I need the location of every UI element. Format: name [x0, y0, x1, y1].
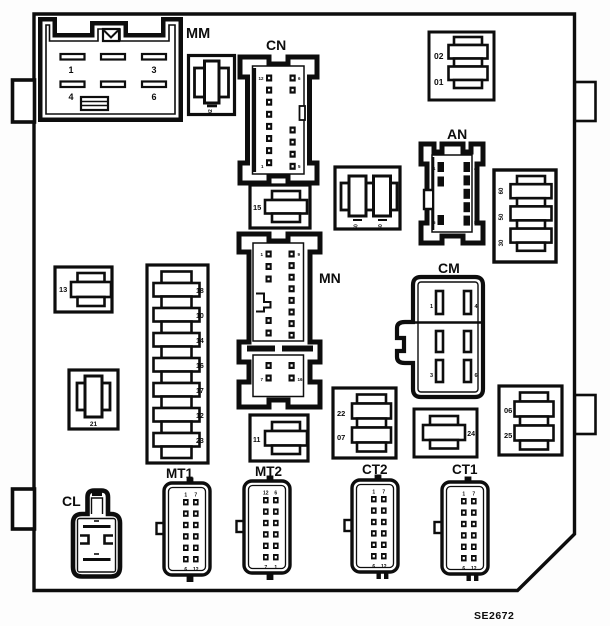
svg-text:SE2672: SE2672	[474, 610, 514, 622]
svg-text:7: 7	[264, 565, 267, 571]
svg-text:13: 13	[59, 285, 67, 294]
svg-text:CN: CN	[266, 37, 286, 53]
svg-text:AN: AN	[447, 126, 467, 142]
svg-text:16: 16	[196, 363, 204, 370]
svg-text:3: 3	[430, 373, 433, 379]
svg-text:12: 12	[196, 413, 204, 420]
svg-text:6: 6	[372, 564, 375, 570]
svg-text:06: 06	[504, 406, 512, 415]
svg-text:12: 12	[471, 566, 477, 572]
svg-text:6: 6	[151, 92, 156, 102]
svg-text:7: 7	[472, 492, 475, 498]
svg-text:6: 6	[184, 567, 187, 573]
svg-text:18: 18	[196, 288, 204, 295]
svg-text:02: 02	[434, 51, 444, 61]
svg-text:25: 25	[504, 431, 512, 440]
svg-text:6: 6	[462, 566, 465, 572]
svg-text:1: 1	[462, 492, 465, 498]
svg-text:MN: MN	[319, 270, 341, 286]
svg-text:11: 11	[253, 437, 261, 444]
svg-text:7: 7	[382, 490, 385, 496]
svg-text:23: 23	[196, 438, 204, 445]
svg-text:12: 12	[381, 564, 387, 570]
svg-text:MM: MM	[186, 26, 210, 42]
svg-text:15: 15	[253, 203, 261, 212]
svg-text:6: 6	[475, 373, 478, 379]
svg-text:1: 1	[68, 65, 73, 75]
svg-text:50: 50	[499, 213, 505, 220]
svg-text:30: 30	[378, 224, 384, 230]
svg-text:22: 22	[337, 409, 345, 418]
svg-text:02: 02	[208, 109, 214, 115]
svg-text:3: 3	[151, 65, 156, 75]
svg-text:4: 4	[68, 92, 73, 102]
svg-text:14: 14	[196, 338, 204, 345]
svg-text:CT1: CT1	[452, 462, 478, 477]
svg-text:17: 17	[196, 388, 204, 395]
svg-text:30: 30	[499, 239, 505, 246]
svg-text:1: 1	[184, 493, 187, 499]
svg-text:1: 1	[430, 304, 433, 310]
svg-text:16: 16	[298, 377, 304, 382]
svg-text:12: 12	[258, 76, 264, 81]
svg-text:1: 1	[274, 565, 277, 571]
svg-text:1: 1	[372, 490, 375, 496]
svg-text:50: 50	[354, 224, 360, 230]
svg-text:6: 6	[274, 491, 277, 497]
svg-text:10: 10	[196, 313, 204, 320]
svg-text:01: 01	[434, 77, 444, 87]
svg-text:7: 7	[194, 493, 197, 499]
svg-text:12: 12	[263, 491, 269, 497]
svg-text:21: 21	[90, 421, 98, 428]
svg-text:CL: CL	[62, 493, 81, 509]
svg-text:CM: CM	[438, 260, 460, 276]
svg-text:07: 07	[337, 433, 345, 442]
svg-text:12: 12	[193, 567, 199, 573]
svg-text:60: 60	[499, 187, 505, 194]
svg-text:24: 24	[467, 431, 475, 438]
